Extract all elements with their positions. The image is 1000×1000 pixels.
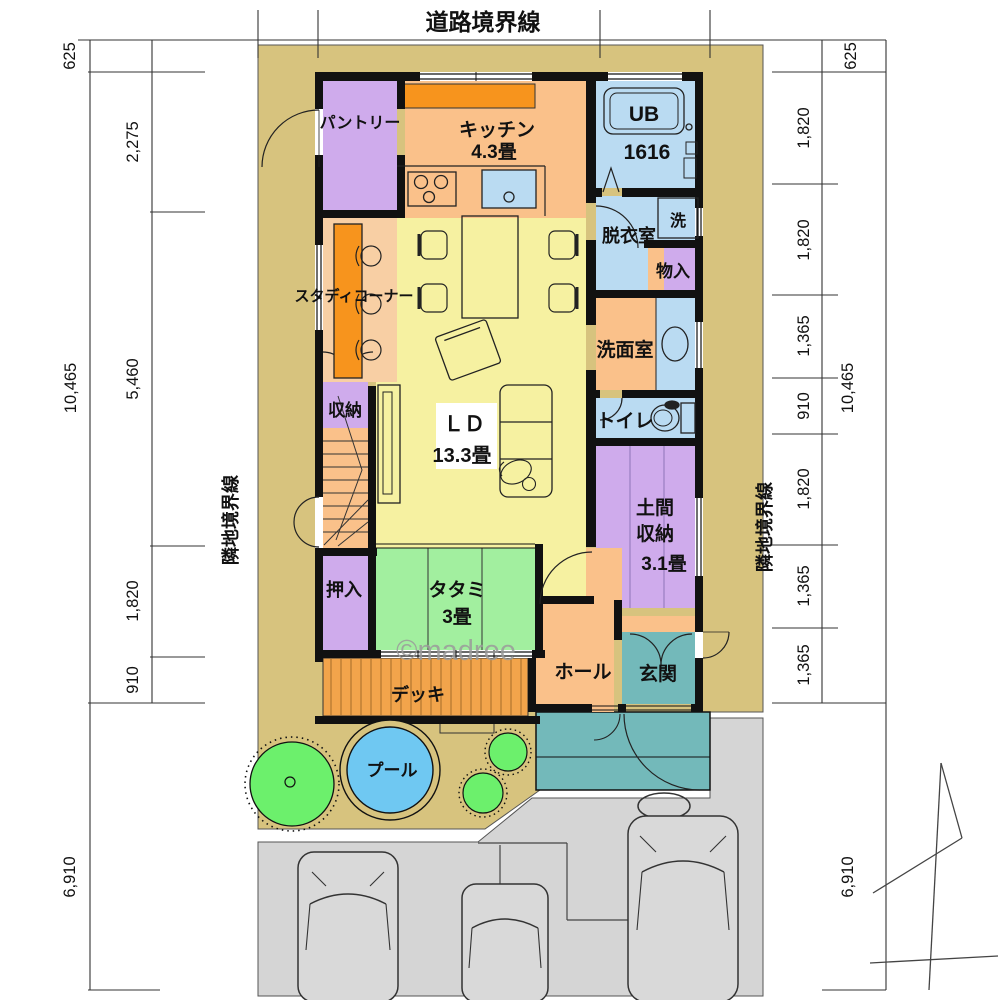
dim-right-910: 910 xyxy=(795,392,813,420)
hall-floor xyxy=(536,604,614,712)
dim-left-5460: 5,460 xyxy=(124,358,142,399)
dim-right-625: 625 xyxy=(842,42,860,70)
car-3 xyxy=(628,793,738,1000)
unit-bath-size-label: 1616 xyxy=(624,141,671,164)
window-kitchen-top xyxy=(420,72,532,81)
dim-right-1820b: 1,820 xyxy=(795,219,813,260)
hall-label: ホール xyxy=(554,662,611,683)
dim-left-625: 625 xyxy=(61,42,79,70)
study-corner-label: スタディコーナー xyxy=(295,287,414,305)
deck-label: デッキ xyxy=(391,684,445,705)
dim-right-6910: 6,910 xyxy=(839,856,857,897)
living-dining-label: ＬＤ xyxy=(443,413,485,436)
window-washroom-right xyxy=(695,322,703,368)
entrance-porch xyxy=(536,712,710,790)
pantry-label: パントリー xyxy=(320,114,401,132)
doma-label-2: 収納 xyxy=(636,522,674,545)
dims-right: 625 1,820 1,820 1,365 910 1,820 1,365 1,… xyxy=(795,42,860,897)
entrance-side-door-gap xyxy=(695,632,703,658)
dim-right-10465: 10,465 xyxy=(839,363,857,413)
floor-plan-drawing: 道路境界線 隣地境界線 隣地境界線 625 2,275 5,460 1,820 … xyxy=(0,0,1000,1000)
north-arrow xyxy=(870,763,998,990)
kitchen-label: キッチン xyxy=(459,120,535,141)
washer-label: 洗 xyxy=(670,211,686,230)
window-unitbath-top xyxy=(608,72,682,81)
tatami-label: タタミ xyxy=(428,579,485,601)
dim-left-1820: 1,820 xyxy=(124,580,142,621)
washroom-label: 洗面室 xyxy=(596,338,653,361)
pool-label: プール xyxy=(367,760,418,780)
tatami-size-label: 3畳 xyxy=(442,606,472,628)
unit-bath-label: UB xyxy=(629,103,659,126)
window-dressing-right xyxy=(695,208,703,236)
entrance-label: 玄関 xyxy=(639,662,677,685)
dims-left: 625 2,275 5,460 1,820 910 10,465 6,910 xyxy=(61,42,142,897)
doma-label-1: 土間 xyxy=(636,497,674,519)
road-boundary-label: 道路境界線 xyxy=(426,9,541,35)
kitchen-cabinet xyxy=(403,84,535,108)
entrance-step xyxy=(622,616,695,632)
floor-plan-page: 道路境界線 隣地境界線 隣地境界線 625 2,275 5,460 1,820 … xyxy=(0,0,1000,1000)
watermark: ©madree xyxy=(396,635,516,667)
dim-left-2275: 2,275 xyxy=(124,121,142,162)
dim-right-1820c: 1,820 xyxy=(795,468,813,509)
car-2 xyxy=(462,884,548,1000)
oshiire-floor xyxy=(323,556,368,650)
living-dining-size-label: 13.3畳 xyxy=(433,444,492,467)
dim-left-910: 910 xyxy=(124,666,142,694)
window-doma-right xyxy=(695,498,703,576)
dim-right-1365c: 1,365 xyxy=(795,644,813,685)
dim-right-1365b: 1,365 xyxy=(795,565,813,606)
dim-right-1365a: 1,365 xyxy=(795,315,813,356)
dressing-room-label: 脱衣室 xyxy=(602,225,656,246)
doma-size-label: 3.1畳 xyxy=(641,553,686,575)
neighbor-boundary-right-label: 隣地境界線 xyxy=(754,482,775,572)
oshiire-label: 押入 xyxy=(326,579,362,600)
stair-storage-label: 収納 xyxy=(328,400,362,420)
garden-door-gap xyxy=(315,497,323,548)
stairs-floor xyxy=(323,428,368,548)
toilet-label: トイレ xyxy=(596,411,653,432)
dim-right-1820a: 1,820 xyxy=(795,107,813,148)
dim-left-10465: 10,465 xyxy=(62,363,80,413)
closet-small-label: 物入 xyxy=(656,261,690,281)
dim-left-6910: 6,910 xyxy=(61,856,79,897)
car-1 xyxy=(298,852,398,1000)
neighbor-boundary-left-label: 隣地境界線 xyxy=(220,475,241,565)
pantry-floor xyxy=(323,81,397,210)
kitchen-size-label: 4.3畳 xyxy=(471,141,516,163)
